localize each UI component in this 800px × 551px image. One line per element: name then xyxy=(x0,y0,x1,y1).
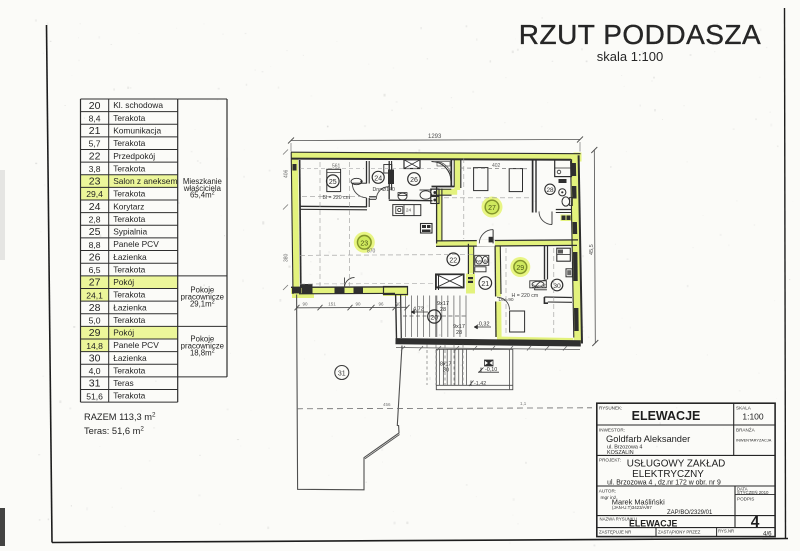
svg-text:25: 25 xyxy=(89,226,101,238)
svg-text:22: 22 xyxy=(449,257,457,264)
svg-text:30: 30 xyxy=(89,352,101,364)
svg-text:29,1m2: 29,1m2 xyxy=(190,300,215,309)
svg-text:27: 27 xyxy=(488,205,496,212)
svg-text:4: 4 xyxy=(751,514,760,531)
svg-text:RAZEM 113,3 m2: RAZEM 113,3 m2 xyxy=(84,412,156,423)
svg-text:Terakota: Terakota xyxy=(113,138,145,148)
svg-text:8,4: 8,4 xyxy=(89,113,101,123)
svg-text:14,8: 14,8 xyxy=(86,341,103,351)
svg-text:23: 23 xyxy=(89,176,101,188)
svg-text:-0,32: -0,32 xyxy=(477,322,490,328)
svg-text:Komunikacja: Komunikacja xyxy=(113,125,161,135)
svg-text:30: 30 xyxy=(553,283,561,290)
svg-text:Salon z aneksem: Salon z aneksem xyxy=(113,176,177,186)
svg-text:28: 28 xyxy=(89,302,101,314)
svg-text:18,8m2: 18,8m2 xyxy=(190,349,215,358)
svg-text:24: 24 xyxy=(406,208,412,214)
svg-text:29: 29 xyxy=(516,265,524,272)
svg-text:(JAN-U.T)3423/A/97: (JAN-U.T)3423/A/97 xyxy=(612,505,652,510)
svg-text:INWESTOR:: INWESTOR: xyxy=(599,428,625,433)
svg-text:ELEWACJE: ELEWACJE xyxy=(632,409,701,423)
svg-text:24: 24 xyxy=(89,201,101,213)
svg-text:90: 90 xyxy=(395,302,401,307)
svg-text:406: 406 xyxy=(284,169,290,178)
svg-text:561: 561 xyxy=(332,164,341,170)
svg-text:2,8: 2,8 xyxy=(89,215,101,225)
svg-text:3,8: 3,8 xyxy=(89,164,101,174)
svg-text:21: 21 xyxy=(481,281,489,288)
svg-text:Kl. schodowa: Kl. schodowa xyxy=(113,100,163,110)
svg-text:8,8: 8,8 xyxy=(89,240,101,250)
svg-text:870: 870 xyxy=(367,248,376,254)
svg-text:90: 90 xyxy=(302,302,308,307)
svg-text:Korytarz: Korytarz xyxy=(113,201,144,211)
svg-text:RYS.NR: RYS.NR xyxy=(718,528,734,533)
svg-text:456: 456 xyxy=(383,402,391,407)
svg-text:ZAP/BO/2329/01: ZAP/BO/2329/01 xyxy=(667,510,713,516)
svg-text:31: 31 xyxy=(89,378,101,390)
svg-text:Dw=90: Dw=90 xyxy=(499,297,514,303)
svg-text:Teras: Teras xyxy=(113,378,133,388)
svg-text:RYSUNEK:: RYSUNEK: xyxy=(599,406,622,411)
svg-text:skala 1:100: skala 1:100 xyxy=(597,49,664,64)
svg-text:Przedpokój: Przedpokój xyxy=(113,151,155,161)
svg-text:29,4: 29,4 xyxy=(86,189,103,199)
svg-text:SKALA: SKALA xyxy=(736,406,752,411)
svg-text:BRANŻA: BRANŻA xyxy=(736,427,756,433)
svg-text:45,5: 45,5 xyxy=(589,244,595,255)
svg-text:-1,42: -1,42 xyxy=(474,381,486,387)
svg-text:5,7: 5,7 xyxy=(89,139,101,149)
svg-text:4/6: 4/6 xyxy=(763,531,772,538)
svg-text:ZASTĄPIONY PRZEZ: ZASTĄPIONY PRZEZ xyxy=(658,530,701,535)
svg-text:27: 27 xyxy=(89,277,101,289)
svg-text:Bl = 220 cm: Bl = 220 cm xyxy=(323,195,351,201)
svg-text:1:100: 1:100 xyxy=(742,412,764,422)
svg-text:26: 26 xyxy=(89,251,101,263)
svg-text:31: 31 xyxy=(338,371,346,378)
svg-text:65,4m2: 65,4m2 xyxy=(190,191,215,200)
svg-text:28: 28 xyxy=(546,187,554,194)
svg-text:ul. Brzozowa 4 , dz.nr 172 w o: ul. Brzozowa 4 , dz.nr 172 w obr. nr 9 xyxy=(607,479,721,486)
svg-text:24,1: 24,1 xyxy=(86,290,103,300)
svg-text:Panele PCV: Panele PCV xyxy=(113,340,159,350)
svg-text:Pokój: Pokój xyxy=(113,328,134,338)
svg-text:RZUT PODDASZA: RZUT PODDASZA xyxy=(519,19,761,50)
svg-text:Łazienka: Łazienka xyxy=(113,353,147,363)
svg-text:Panele PCV: Panele PCV xyxy=(113,239,159,249)
svg-text:20: 20 xyxy=(431,315,439,322)
svg-text:23: 23 xyxy=(360,240,368,247)
svg-text:28: 28 xyxy=(440,307,446,313)
svg-text:Terakota: Terakota xyxy=(113,264,145,274)
svg-text:Dw=60: Dw=60 xyxy=(532,284,547,290)
svg-text:90: 90 xyxy=(355,302,361,307)
svg-text:20: 20 xyxy=(89,100,101,112)
svg-text:1293: 1293 xyxy=(428,134,442,140)
svg-text:Łazienka: Łazienka xyxy=(113,302,147,312)
svg-text:Dn=Ø140: Dn=Ø140 xyxy=(373,187,395,193)
svg-text:26: 26 xyxy=(410,177,418,184)
svg-text:6,5: 6,5 xyxy=(89,265,101,275)
svg-text:H = 220 cm: H = 220 cm xyxy=(512,293,539,299)
svg-text:PROJEKT:: PROJEKT: xyxy=(599,458,621,463)
svg-text:151: 151 xyxy=(328,302,336,307)
svg-text:Łazienka: Łazienka xyxy=(113,252,147,262)
svg-text:Terakota: Terakota xyxy=(113,214,145,224)
svg-text:22: 22 xyxy=(89,150,101,162)
svg-text:PODPIS: PODPIS xyxy=(737,496,754,501)
svg-text:5,0: 5,0 xyxy=(89,316,101,326)
svg-text:Terakota: Terakota xyxy=(113,391,145,401)
svg-text:KOSZALIN: KOSZALIN xyxy=(607,450,634,456)
svg-text:Terakota: Terakota xyxy=(113,189,145,199)
svg-text:Terakota: Terakota xyxy=(113,315,145,325)
svg-text:4,0: 4,0 xyxy=(89,366,101,376)
svg-text:USŁUGOWY ZAKŁAD: USŁUGOWY ZAKŁAD xyxy=(627,459,726,470)
svg-text:INWENTARYZACJA: INWENTARYZACJA xyxy=(736,438,772,443)
svg-text:28: 28 xyxy=(456,330,462,336)
svg-text:AUTOR:: AUTOR: xyxy=(599,489,616,494)
svg-text:30: 30 xyxy=(443,368,449,374)
svg-text:25: 25 xyxy=(329,179,337,186)
svg-text:ELEWACJE: ELEWACJE xyxy=(629,518,678,528)
svg-text:STYCZEŃ 2010: STYCZEŃ 2010 xyxy=(737,490,769,495)
svg-text:1,1: 1,1 xyxy=(520,401,527,406)
svg-text:Terakota: Terakota xyxy=(113,163,145,173)
svg-text:24: 24 xyxy=(374,175,382,182)
svg-text:Dw=60: Dw=60 xyxy=(474,259,489,265)
svg-text:96: 96 xyxy=(378,302,384,307)
svg-text:402: 402 xyxy=(492,163,501,169)
svg-text:Pokój: Pokój xyxy=(113,277,134,287)
svg-text:ZASTĘPUJE NR: ZASTĘPUJE NR xyxy=(599,530,631,535)
svg-text:Terakota: Terakota xyxy=(113,365,145,375)
svg-text:51,6: 51,6 xyxy=(86,391,103,401)
svg-text:21: 21 xyxy=(89,125,101,137)
svg-text:Teras: 51,6 m2: Teras: 51,6 m2 xyxy=(84,426,144,437)
svg-text:Sypialnia: Sypialnia xyxy=(113,227,147,237)
svg-text:Terakota: Terakota xyxy=(113,113,145,123)
svg-text:29: 29 xyxy=(89,327,101,339)
svg-text:380: 380 xyxy=(284,253,290,262)
svg-text:Terakota: Terakota xyxy=(113,290,145,300)
svg-text:Goldfarb Aleksander: Goldfarb Aleksander xyxy=(606,434,690,444)
